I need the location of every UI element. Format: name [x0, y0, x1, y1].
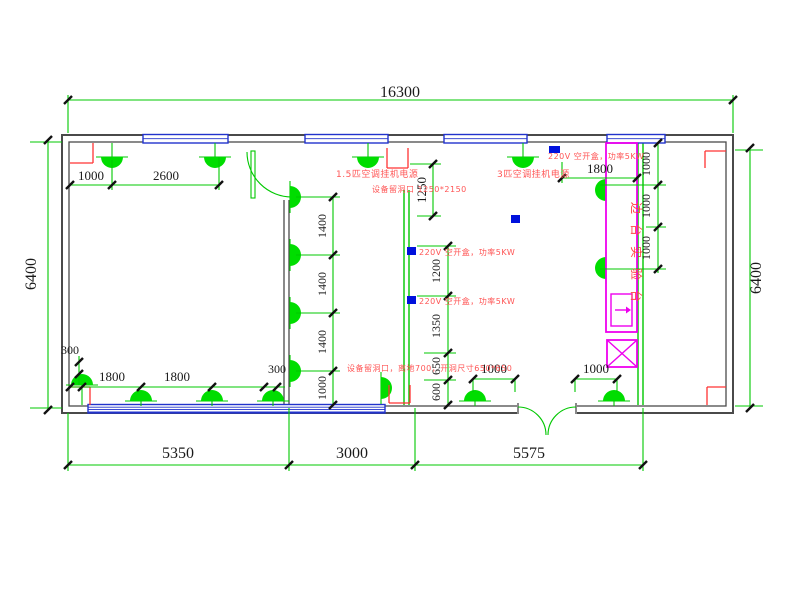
ac-socket-icon — [387, 148, 408, 168]
dim-height-left: 6400 — [23, 258, 40, 290]
annotation-hole-bottom: 设备留洞口，离地700，开洞尺寸650*650 — [347, 363, 512, 373]
floor-plan-drawing: 16300 6400 6400 5350 3000 5575 1000 2600… — [0, 0, 800, 600]
lamp-icon — [507, 143, 539, 168]
dim-bl-300a: 300 — [61, 343, 79, 357]
dim-mid-1400a: 1400 — [315, 214, 329, 238]
dim-bottom-5350: 5350 — [162, 445, 194, 462]
dim-600: 600 — [429, 383, 443, 401]
dim-mid-1400c: 1400 — [315, 330, 329, 354]
lamp-icon — [352, 143, 384, 168]
dim-top-right-1800: 1800 — [587, 161, 613, 176]
lamp-icon — [66, 374, 98, 405]
dim-height-right: 6400 — [748, 262, 765, 294]
lamp-icon — [199, 143, 231, 168]
dim-bottom-5575: 5575 — [513, 445, 545, 462]
annotation-breaker-top: 220V 空开盒，功率5KW — [548, 151, 644, 161]
annotation-ac-3hp: 3匹空调挂机电源 — [497, 168, 570, 180]
dimension-lines — [30, 95, 763, 471]
dim-overall-width: 16300 — [380, 84, 420, 101]
ceiling-lamp-icons-bottom — [66, 374, 630, 406]
lamp-icon — [595, 252, 606, 284]
wall-lamp-icons-bench — [595, 174, 606, 284]
lamp-icon — [595, 174, 606, 206]
annotation-bench-label: 边台实验台 — [629, 202, 644, 312]
dim-mid-1000: 1000 — [315, 376, 329, 400]
annotation-hole-top: 设备留洞口 1250*2150 — [372, 184, 467, 194]
double-door-icon — [517, 402, 577, 435]
dim-bl-300b: 300 — [268, 362, 286, 376]
floor-plan-canvas: 16300 6400 6400 5350 3000 5575 1000 2600… — [0, 0, 800, 600]
dim-bc-1000b: 1000 — [583, 361, 609, 376]
dim-top-1000: 1000 — [78, 168, 104, 183]
dim-bottom-3000: 3000 — [336, 445, 368, 462]
lamp-icon — [459, 390, 491, 406]
dim-1350: 1350 — [429, 314, 443, 338]
dim-bl-1800a: 1800 — [99, 369, 125, 384]
single-door-icon — [247, 151, 292, 198]
lamp-icon — [196, 390, 228, 406]
annotation-ac-1-5hp: 1.5匹空调挂机电源 — [336, 168, 418, 180]
lamp-icon — [125, 390, 157, 406]
dim-1200: 1200 — [429, 259, 443, 283]
dim-bl-1800b: 1800 — [164, 369, 190, 384]
equipment-hole-icon — [389, 385, 410, 403]
annotation-breaker-mid-1: 220V 空开盒，功率5KW — [419, 247, 515, 257]
lamp-icon — [598, 390, 630, 406]
window-icon-bottom — [88, 405, 385, 414]
lamp-icon — [381, 372, 392, 404]
dim-mid-1400b: 1400 — [315, 272, 329, 296]
annotation-breaker-mid-2: 220V 空开盒，功率5KW — [419, 296, 515, 306]
ceiling-lamp-icons-top — [96, 143, 539, 168]
dim-top-2600: 2600 — [153, 168, 179, 183]
